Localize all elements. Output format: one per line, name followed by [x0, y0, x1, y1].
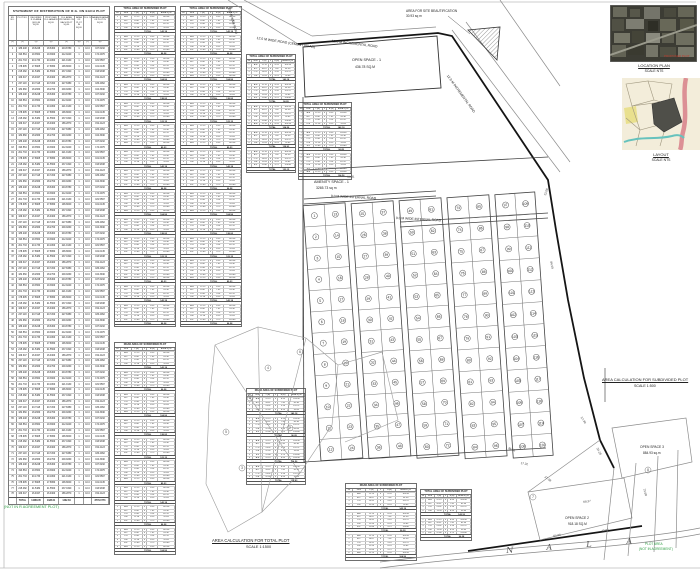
svg-text:17: 17 — [339, 297, 343, 301]
svg-text:77: 77 — [462, 293, 466, 297]
svg-text:10: 10 — [326, 405, 330, 409]
svg-text:22: 22 — [347, 404, 351, 408]
map-label: (NOT IN R AGREEMENT PLOT) — [4, 505, 59, 509]
svg-text:120: 120 — [539, 443, 545, 447]
svg-text:97: 97 — [504, 203, 508, 207]
svg-text:27: 27 — [363, 254, 367, 258]
map-label: N — [506, 546, 514, 555]
svg-text:118: 118 — [537, 399, 543, 403]
site-plan-drawing: 1234567891011121314151617181920212223242… — [0, 0, 700, 572]
svg-text:52: 52 — [413, 273, 417, 277]
svg-text:32: 32 — [371, 360, 375, 364]
layout-key-map — [622, 78, 700, 150]
svg-text:48: 48 — [398, 444, 402, 448]
svg-text:47: 47 — [396, 423, 400, 427]
svg-text:69: 69 — [441, 379, 445, 383]
svg-text:93: 93 — [489, 379, 493, 383]
svg-text:81: 81 — [468, 380, 472, 384]
map-label: (NOT IN AGREEMENT) — [639, 547, 673, 551]
svg-text:73: 73 — [456, 206, 460, 210]
svg-text:38: 38 — [383, 232, 387, 236]
svg-text:14: 14 — [335, 234, 339, 238]
svg-text:18: 18 — [341, 319, 345, 323]
svg-text:106: 106 — [516, 401, 522, 405]
site-boundary-bottom — [468, 526, 642, 551]
svg-text:101: 101 — [509, 291, 515, 295]
svg-text:19: 19 — [342, 340, 346, 344]
svg-text:28: 28 — [365, 275, 369, 279]
svg-text:3: 3 — [241, 466, 243, 470]
svg-text:15: 15 — [336, 255, 340, 259]
svg-text:111: 111 — [526, 246, 532, 250]
svg-text:6: 6 — [299, 350, 301, 354]
svg-text:72: 72 — [446, 443, 450, 447]
layout-title: LAYOUT — [622, 152, 700, 157]
svg-text:68: 68 — [440, 358, 444, 362]
svg-text:94: 94 — [491, 400, 495, 404]
map-label: 30.93 sq m — [406, 14, 422, 18]
svg-text:119: 119 — [538, 421, 544, 425]
svg-text:41: 41 — [387, 295, 391, 299]
svg-text:51: 51 — [411, 252, 415, 256]
svg-text:39: 39 — [384, 253, 388, 257]
svg-text:24: 24 — [350, 446, 354, 450]
map-label: SCALE 1:500 — [634, 384, 656, 388]
cement-road-lines — [228, 0, 570, 172]
map-label: OPEN SPACE - 1 — [352, 58, 381, 62]
location-plan-scale: SCALE NTS — [614, 69, 694, 73]
site-boundary — [298, 33, 614, 468]
beautification-leader — [448, 16, 470, 34]
svg-text:80: 80 — [467, 358, 471, 362]
svg-text:45: 45 — [393, 380, 397, 384]
svg-text:1: 1 — [313, 214, 315, 218]
svg-text:98: 98 — [505, 225, 509, 229]
svg-text:60: 60 — [425, 445, 429, 449]
svg-text:76: 76 — [461, 271, 465, 275]
svg-text:95: 95 — [492, 422, 496, 426]
svg-text:57: 57 — [420, 380, 424, 384]
svg-text:110: 110 — [524, 224, 530, 228]
svg-text:100: 100 — [507, 269, 513, 273]
map-label: OPEN SPACE 3 — [640, 445, 664, 449]
map-label: AREA CALCULATION FOR SUBDIVIDED PLOT — [602, 377, 688, 382]
svg-text:2: 2 — [289, 426, 291, 430]
svg-text:58: 58 — [422, 402, 426, 406]
svg-text:117: 117 — [535, 377, 541, 381]
svg-text:67: 67 — [438, 336, 442, 340]
map-label: 918.18 SQ.M — [568, 522, 587, 526]
svg-text:23: 23 — [348, 425, 352, 429]
total-plot-figure — [206, 327, 398, 532]
location-plan-title: LOCATION PLAN — [614, 63, 694, 68]
svg-text:50: 50 — [410, 230, 414, 234]
svg-text:31: 31 — [369, 339, 373, 343]
svg-text:108: 108 — [520, 444, 526, 448]
svg-text:8: 8 — [324, 363, 326, 367]
svg-text:64: 64 — [434, 272, 438, 276]
svg-text:82: 82 — [470, 402, 474, 406]
figure-plot-numbers: 41253678 — [223, 349, 651, 500]
svg-text:87: 87 — [480, 248, 484, 252]
svg-text:70: 70 — [443, 400, 447, 404]
svg-text:25: 25 — [360, 212, 364, 216]
svg-text:42: 42 — [389, 317, 393, 321]
svg-text:88: 88 — [482, 270, 486, 274]
svg-text:49: 49 — [408, 209, 412, 213]
map-label: AMENITY SPACE - 1 — [314, 180, 349, 184]
map-label: L — [586, 540, 592, 549]
sheet-frame — [0, 2, 700, 568]
svg-text:65: 65 — [435, 293, 439, 297]
map-label: 884.93 sq.m — [643, 451, 661, 455]
svg-text:1: 1 — [249, 396, 251, 400]
svg-text:2: 2 — [315, 235, 317, 239]
svg-text:92: 92 — [488, 357, 492, 361]
svg-text:7: 7 — [322, 341, 324, 345]
svg-text:43: 43 — [390, 338, 394, 342]
svg-text:5: 5 — [225, 430, 227, 434]
svg-text:113: 113 — [529, 289, 535, 293]
svg-text:46: 46 — [395, 402, 399, 406]
map-label: A — [626, 537, 632, 546]
svg-text:107: 107 — [518, 422, 524, 426]
svg-text:12: 12 — [329, 447, 333, 451]
svg-text:78: 78 — [464, 315, 468, 319]
map-label: 3265.73 sq m — [316, 186, 337, 190]
svg-text:102: 102 — [510, 313, 516, 317]
svg-text:99: 99 — [507, 247, 511, 251]
svg-text:6: 6 — [321, 320, 323, 324]
map-label: 54.31 — [347, 175, 355, 179]
svg-text:84: 84 — [473, 445, 477, 449]
svg-text:112: 112 — [527, 267, 533, 271]
svg-text:59: 59 — [423, 423, 427, 427]
svg-text:62: 62 — [431, 229, 435, 233]
svg-text:26: 26 — [362, 233, 366, 237]
svg-text:61: 61 — [429, 207, 433, 211]
plot-band: 9798991001011021031041051061071081091101… — [495, 192, 553, 458]
svg-text:83: 83 — [471, 423, 475, 427]
beautification-hatch — [468, 27, 500, 60]
svg-text:105: 105 — [515, 379, 521, 383]
svg-text:103: 103 — [512, 335, 518, 339]
layout-scale: SCALE NTS — [622, 158, 700, 162]
svg-text:30: 30 — [368, 318, 372, 322]
svg-text:53: 53 — [414, 295, 418, 299]
svg-text:74: 74 — [458, 228, 462, 232]
svg-text:86: 86 — [479, 226, 483, 230]
map-label: PLOT AREA — [645, 542, 663, 546]
svg-text:21: 21 — [345, 382, 349, 386]
svg-text:36: 36 — [377, 445, 381, 449]
svg-text:40: 40 — [386, 274, 390, 278]
proposed-plot-annotation: PROPOSED PLOT — [664, 54, 690, 58]
svg-text:5: 5 — [319, 299, 321, 303]
svg-text:114: 114 — [530, 311, 536, 315]
svg-text:85: 85 — [477, 205, 481, 209]
svg-text:29: 29 — [366, 297, 370, 301]
svg-text:4: 4 — [267, 366, 269, 370]
svg-text:79: 79 — [465, 336, 469, 340]
svg-text:34: 34 — [374, 403, 378, 407]
svg-text:44: 44 — [392, 359, 396, 363]
map-label: OPEN SPACE 2 — [565, 516, 589, 520]
svg-text:63: 63 — [432, 250, 436, 254]
svg-text:115: 115 — [532, 333, 538, 337]
svg-text:4: 4 — [318, 278, 320, 282]
svg-text:55: 55 — [417, 338, 421, 342]
map-label: 436.78 SQ.M — [355, 65, 375, 69]
plot-band: 7374757677787980818283848586878889909192… — [447, 195, 507, 459]
svg-text:89: 89 — [483, 292, 487, 296]
svg-text:116: 116 — [533, 355, 539, 359]
svg-text:3: 3 — [316, 256, 318, 260]
map-label: AREA FOR SITE BEAUTIFICATION — [406, 9, 457, 13]
svg-text:71: 71 — [444, 422, 448, 426]
svg-text:56: 56 — [419, 359, 423, 363]
svg-text:13: 13 — [333, 212, 337, 216]
svg-text:75: 75 — [459, 249, 463, 253]
svg-text:7: 7 — [532, 495, 534, 499]
svg-text:16: 16 — [338, 276, 342, 280]
map-label: AREA CALCULATION FOR TOTAL PLOT — [212, 538, 290, 543]
drawing-sheet: STATEMENT OF DISTRIBUTION OF R.G. ON EAC… — [0, 0, 700, 572]
svg-text:9: 9 — [325, 384, 327, 388]
svg-text:37: 37 — [381, 210, 385, 214]
svg-text:8: 8 — [647, 468, 649, 472]
svg-text:66: 66 — [437, 315, 441, 319]
svg-text:109: 109 — [523, 202, 529, 206]
map-label: A — [546, 543, 552, 552]
svg-text:90: 90 — [485, 313, 489, 317]
svg-text:104: 104 — [513, 357, 519, 361]
svg-text:54: 54 — [416, 316, 420, 320]
map-label: SCALE 1:1500 — [246, 545, 271, 549]
svg-text:33: 33 — [372, 382, 376, 386]
plot-grid: 1234567891011121314151617181920212223242… — [303, 192, 553, 461]
svg-text:91: 91 — [486, 335, 490, 339]
svg-text:96: 96 — [494, 444, 498, 448]
